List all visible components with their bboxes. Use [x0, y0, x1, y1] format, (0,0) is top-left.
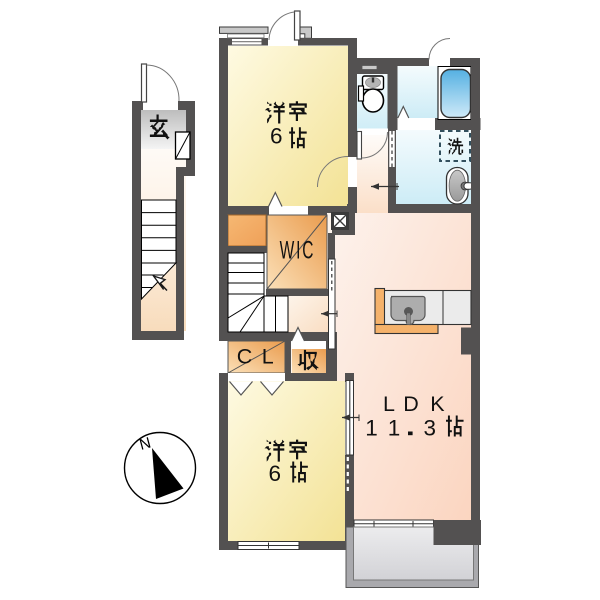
svg-text:6: 6	[270, 123, 283, 148]
svg-text:C: C	[237, 345, 253, 369]
svg-text:1: 1	[365, 415, 378, 440]
svg-text:K: K	[430, 392, 445, 416]
svg-text:WIC: WIC	[280, 237, 316, 265]
svg-text:6: 6	[268, 461, 281, 486]
svg-text:L: L	[262, 345, 274, 369]
svg-text:D: D	[403, 392, 419, 416]
svg-text:3: 3	[423, 415, 436, 440]
svg-text:1: 1	[388, 415, 401, 440]
svg-text:L: L	[383, 392, 395, 416]
